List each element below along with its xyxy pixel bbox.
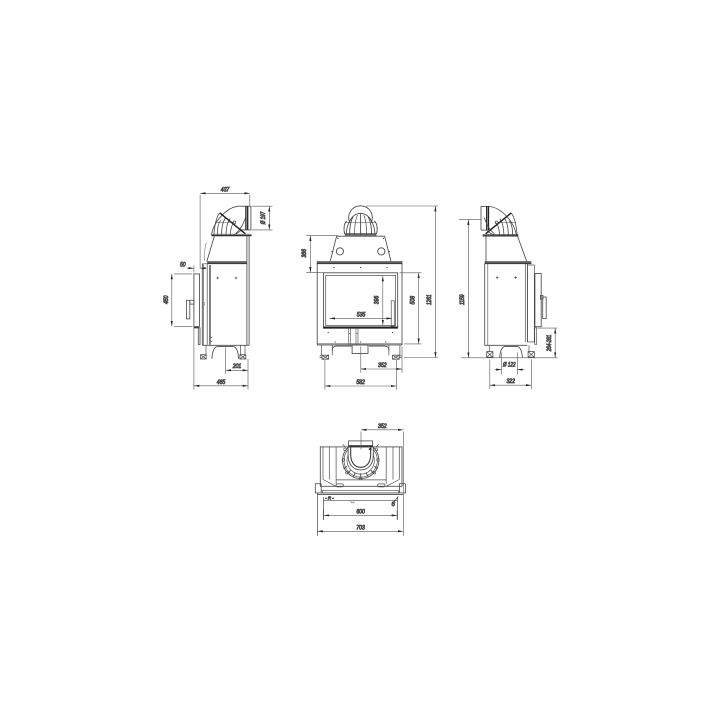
svg-text:201: 201 bbox=[232, 364, 241, 370]
svg-text:600: 600 bbox=[356, 509, 365, 515]
svg-text:1261: 1261 bbox=[427, 295, 433, 306]
svg-text:437: 437 bbox=[221, 188, 230, 194]
svg-text:1159: 1159 bbox=[460, 294, 466, 305]
svg-text:508: 508 bbox=[410, 295, 416, 304]
svg-text:50: 50 bbox=[180, 262, 186, 268]
svg-text:450: 450 bbox=[164, 295, 170, 304]
svg-text:264-281: 264-281 bbox=[547, 335, 553, 352]
svg-text:352: 352 bbox=[378, 363, 387, 369]
svg-text:352: 352 bbox=[378, 424, 387, 430]
svg-text:322: 322 bbox=[506, 379, 515, 385]
svg-text:703: 703 bbox=[356, 525, 365, 531]
svg-text:6: 6 bbox=[392, 502, 396, 508]
svg-text:Ø 122: Ø 122 bbox=[502, 363, 516, 369]
svg-text:535: 535 bbox=[357, 312, 366, 318]
svg-text:396: 396 bbox=[375, 295, 381, 304]
svg-text:Ø 197: Ø 197 bbox=[261, 211, 267, 225]
svg-text:465: 465 bbox=[217, 380, 226, 386]
svg-text:582: 582 bbox=[356, 380, 365, 386]
svg-text:- R -: - R - bbox=[325, 495, 334, 500]
svg-text:366: 366 bbox=[302, 248, 308, 257]
